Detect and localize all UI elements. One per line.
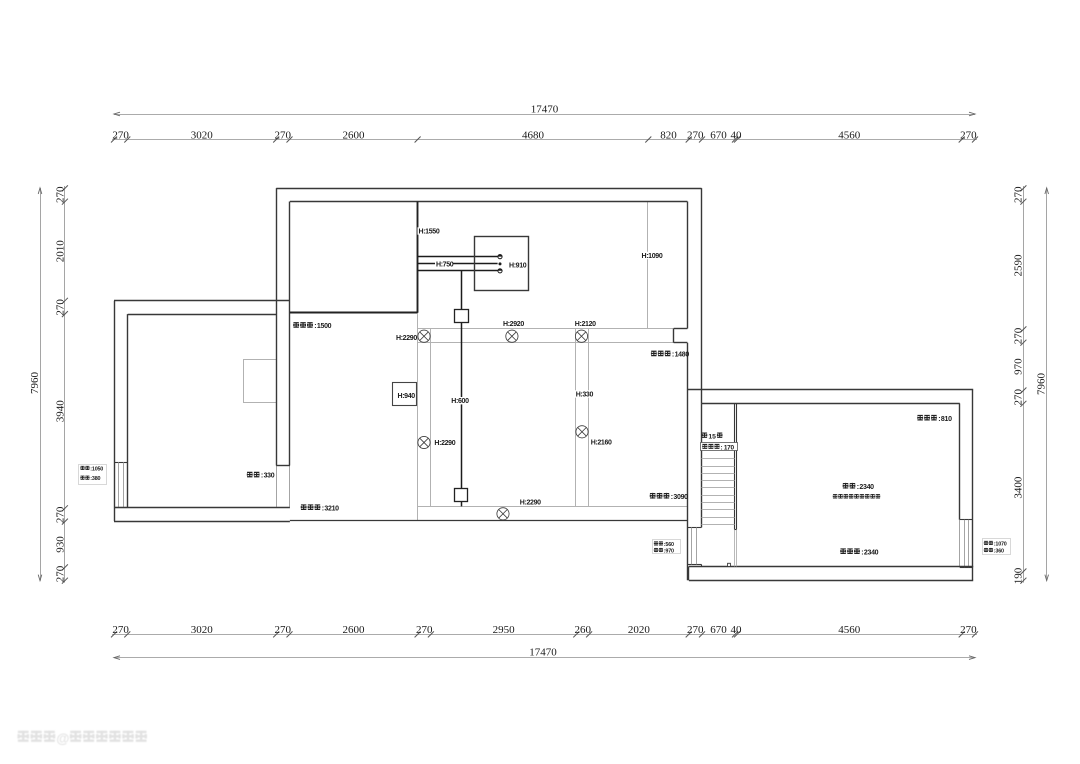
svg-text:H:1550: H:1550 — [419, 229, 440, 236]
svg-text:3400: 3400 — [1013, 476, 1025, 499]
svg-text:2340: 2340 — [859, 484, 874, 491]
svg-text::360: :360 — [994, 549, 1004, 555]
svg-text:820: 820 — [660, 130, 677, 142]
svg-text:: 170: : 170 — [721, 444, 735, 451]
svg-text:2010: 2010 — [55, 240, 67, 263]
svg-text:270: 270 — [112, 624, 129, 636]
svg-text::1050: :1050 — [90, 466, 103, 472]
svg-text:17470: 17470 — [529, 647, 557, 659]
svg-text:H:2920: H:2920 — [503, 321, 524, 328]
svg-text:2020: 2020 — [628, 624, 651, 636]
svg-text:270: 270 — [55, 565, 67, 582]
svg-text:3020: 3020 — [191, 130, 214, 142]
svg-text:H:2290: H:2290 — [434, 440, 455, 447]
svg-text::970: :970 — [664, 549, 674, 555]
svg-text:270: 270 — [275, 624, 292, 636]
svg-text:3090: 3090 — [673, 494, 688, 501]
svg-text:270: 270 — [275, 130, 292, 142]
svg-text:270: 270 — [112, 130, 129, 142]
svg-text:930: 930 — [55, 536, 67, 553]
svg-text:H:2290: H:2290 — [396, 335, 417, 342]
svg-text:3210: 3210 — [324, 505, 339, 512]
svg-text:@: @ — [56, 731, 69, 746]
svg-text:40: 40 — [731, 130, 743, 142]
svg-text:2600: 2600 — [343, 624, 366, 636]
svg-text:970: 970 — [1013, 358, 1025, 375]
svg-text:17470: 17470 — [531, 104, 559, 116]
svg-text:270: 270 — [416, 624, 433, 636]
svg-text::380: :380 — [90, 476, 100, 482]
svg-text:270: 270 — [1013, 388, 1025, 405]
svg-text:7960: 7960 — [1036, 373, 1048, 396]
svg-text:H:2160: H:2160 — [591, 440, 612, 447]
svg-text:4560: 4560 — [838, 624, 861, 636]
svg-text:2590: 2590 — [1013, 254, 1025, 277]
svg-text:260: 260 — [574, 624, 591, 636]
svg-text:190: 190 — [1013, 567, 1025, 584]
svg-text:H:1090: H:1090 — [642, 253, 663, 260]
svg-text:2950: 2950 — [493, 624, 516, 636]
svg-text:270: 270 — [55, 299, 67, 316]
svg-text:1500: 1500 — [317, 323, 332, 330]
svg-text:270: 270 — [960, 624, 977, 636]
svg-text:670: 670 — [710, 624, 727, 636]
svg-text:270: 270 — [960, 130, 977, 142]
svg-text:270: 270 — [687, 624, 704, 636]
svg-text:270: 270 — [1013, 186, 1025, 203]
svg-text:H:330: H:330 — [576, 392, 594, 399]
svg-text:H:910: H:910 — [509, 263, 527, 270]
svg-text:3020: 3020 — [191, 624, 214, 636]
svg-text:7960: 7960 — [29, 372, 41, 395]
svg-text:270: 270 — [1013, 327, 1025, 344]
svg-text:3940: 3940 — [55, 400, 67, 423]
svg-text:270: 270 — [55, 186, 67, 203]
svg-text:2600: 2600 — [343, 130, 366, 142]
svg-text:H:600: H:600 — [451, 398, 469, 405]
svg-text::560: :560 — [664, 542, 674, 548]
svg-text:H:940: H:940 — [398, 393, 416, 400]
svg-text:H:2120: H:2120 — [575, 321, 596, 328]
svg-text:270: 270 — [687, 130, 704, 142]
svg-text:4680: 4680 — [522, 130, 545, 142]
svg-text:330: 330 — [264, 473, 275, 480]
svg-text::1070: :1070 — [994, 541, 1007, 547]
svg-text:1480: 1480 — [675, 352, 690, 359]
svg-text:4560: 4560 — [838, 130, 861, 142]
svg-text:670: 670 — [710, 130, 727, 142]
svg-text:15: 15 — [708, 433, 716, 440]
svg-text:810: 810 — [941, 416, 952, 423]
svg-text:2340: 2340 — [864, 549, 879, 556]
svg-text:H:750: H:750 — [436, 262, 454, 269]
svg-text:H:2290: H:2290 — [520, 500, 541, 507]
svg-text:270: 270 — [55, 506, 67, 523]
svg-text:40: 40 — [731, 624, 743, 636]
